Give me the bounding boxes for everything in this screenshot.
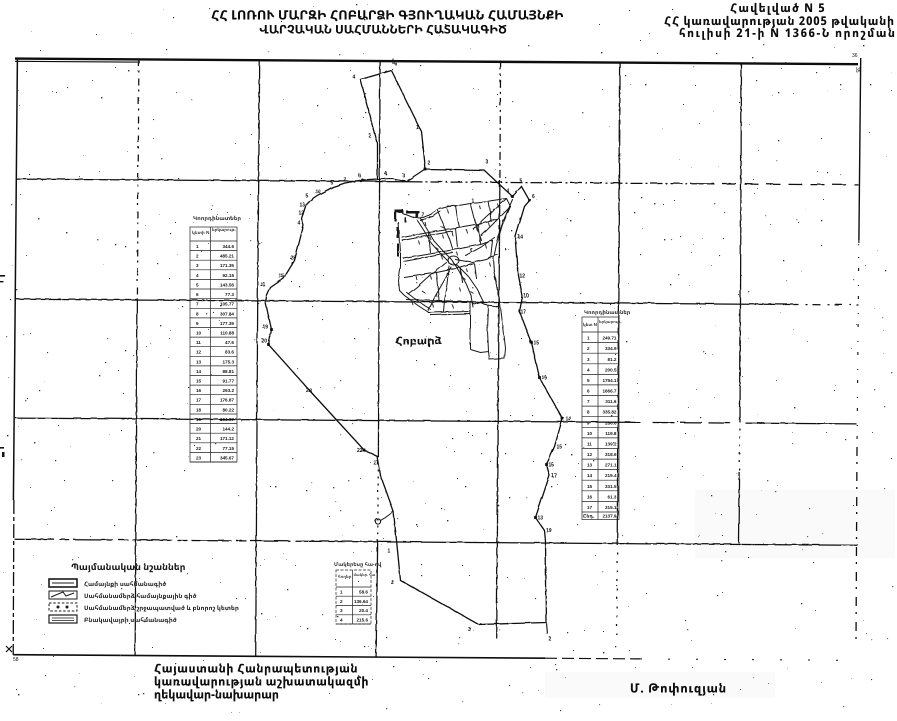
- svg-text:8: 8: [587, 410, 590, 415]
- svg-text:10: 10: [523, 293, 529, 299]
- svg-text:80.22: 80.22: [223, 407, 235, 412]
- svg-text:4: 4: [352, 74, 355, 80]
- svg-text:35: 35: [854, 67, 860, 73]
- svg-text:11: 11: [196, 340, 201, 345]
- svg-text:105.77: 105.77: [220, 302, 234, 307]
- svg-text:144.2: 144.2: [223, 427, 235, 432]
- svg-text:143.56: 143.56: [220, 282, 234, 287]
- svg-text:16: 16: [196, 388, 202, 393]
- svg-text:3: 3: [340, 608, 343, 613]
- svg-text:17: 17: [520, 309, 526, 315]
- svg-text:12: 12: [298, 210, 304, 216]
- svg-text:164.87: 164.87: [220, 417, 234, 422]
- svg-text:5: 5: [305, 193, 308, 199]
- svg-text:11: 11: [587, 442, 592, 447]
- svg-text:2: 2: [368, 133, 371, 139]
- svg-text:58.6: 58.6: [359, 590, 368, 595]
- svg-text:249.71: 249.71: [602, 336, 616, 341]
- svg-text:5: 5: [330, 180, 333, 186]
- svg-text:22: 22: [196, 446, 202, 451]
- svg-text:1: 1: [587, 336, 590, 341]
- svg-text:13: 13: [196, 359, 202, 364]
- svg-text:17: 17: [196, 398, 202, 403]
- svg-text:4: 4: [297, 220, 300, 226]
- svg-text:1: 1: [196, 244, 199, 249]
- svg-text:10: 10: [196, 331, 202, 336]
- svg-text:11: 11: [260, 282, 266, 288]
- svg-text:13: 13: [537, 515, 543, 521]
- svg-text:23: 23: [196, 455, 202, 460]
- svg-text:17: 17: [587, 505, 593, 510]
- svg-text:200.5: 200.5: [605, 367, 617, 372]
- svg-text:4: 4: [384, 171, 387, 177]
- svg-text:1: 1: [416, 125, 419, 131]
- svg-text:77.15: 77.15: [223, 446, 235, 451]
- svg-text:6: 6: [196, 292, 199, 297]
- svg-text:7: 7: [196, 302, 199, 307]
- svg-text:1: 1: [387, 548, 390, 554]
- svg-text:28: 28: [290, 255, 296, 261]
- svg-text:20: 20: [196, 427, 202, 432]
- svg-text:47.6: 47.6: [225, 340, 234, 345]
- svg-text:23: 23: [306, 388, 312, 394]
- svg-text:14: 14: [517, 234, 523, 240]
- svg-text:175.3: 175.3: [223, 359, 235, 364]
- svg-text:18: 18: [196, 407, 202, 412]
- svg-text:12: 12: [587, 452, 593, 457]
- svg-text:13: 13: [299, 202, 305, 208]
- svg-text:171.35: 171.35: [220, 263, 234, 268]
- svg-text:10: 10: [315, 189, 321, 195]
- svg-text:271.1: 271.1: [605, 463, 617, 468]
- svg-text:3: 3: [402, 173, 405, 179]
- svg-text:2: 2: [587, 346, 590, 351]
- svg-text:215.6: 215.6: [357, 617, 369, 622]
- svg-text:345.67: 345.67: [220, 455, 234, 460]
- svg-text:8: 8: [196, 311, 199, 316]
- svg-text:7: 7: [587, 399, 590, 404]
- svg-text:16: 16: [587, 494, 593, 499]
- svg-text:4: 4: [196, 273, 199, 278]
- svg-text:5: 5: [519, 178, 522, 184]
- svg-text:6: 6: [587, 389, 590, 394]
- svg-text:2: 2: [340, 599, 343, 604]
- svg-text:6: 6: [358, 173, 361, 179]
- svg-text:286.6: 286.6: [605, 420, 617, 425]
- svg-text:2: 2: [548, 636, 551, 642]
- svg-text:3: 3: [587, 357, 590, 362]
- svg-text:14: 14: [196, 369, 202, 374]
- svg-text:21: 21: [196, 436, 202, 441]
- svg-text:307.84: 307.84: [220, 311, 234, 316]
- svg-text:15: 15: [196, 379, 202, 384]
- svg-text:176.87: 176.87: [220, 398, 234, 403]
- svg-text:315.1: 315.1: [605, 505, 617, 510]
- svg-text:2137.9: 2137.9: [602, 514, 616, 519]
- svg-text:4: 4: [587, 367, 590, 372]
- svg-text:6: 6: [394, 61, 397, 67]
- svg-text:119.8: 119.8: [605, 431, 617, 436]
- svg-text:77.3: 77.3: [225, 292, 234, 297]
- svg-text:3: 3: [468, 627, 471, 633]
- svg-text:19: 19: [196, 417, 202, 422]
- svg-text:311.6: 311.6: [605, 399, 617, 404]
- svg-text:2: 2: [196, 254, 199, 259]
- svg-text:1: 1: [340, 590, 343, 595]
- svg-text:219.4: 219.4: [605, 473, 617, 478]
- svg-text:81.2: 81.2: [608, 357, 617, 362]
- svg-text:17: 17: [551, 473, 557, 479]
- svg-text:61.3: 61.3: [608, 494, 617, 499]
- svg-text:331.5: 331.5: [605, 484, 617, 489]
- svg-text:318.6: 318.6: [605, 452, 617, 457]
- svg-text:1754.1: 1754.1: [602, 378, 616, 383]
- svg-text:6: 6: [532, 194, 535, 200]
- svg-text:1666.7: 1666.7: [602, 389, 616, 394]
- svg-text:12: 12: [519, 273, 525, 279]
- svg-text:4: 4: [340, 617, 343, 622]
- svg-text:5: 5: [196, 282, 199, 287]
- svg-text:19: 19: [541, 375, 547, 381]
- svg-text:15: 15: [587, 484, 593, 489]
- svg-text:334.9: 334.9: [605, 346, 617, 351]
- svg-text:485.21: 485.21: [220, 254, 234, 259]
- svg-text:9: 9: [196, 321, 199, 326]
- svg-text:13: 13: [587, 463, 593, 468]
- svg-text:19: 19: [262, 324, 268, 330]
- svg-text:9: 9: [587, 420, 590, 425]
- svg-text:110.88: 110.88: [220, 331, 234, 336]
- svg-text:7: 7: [343, 177, 346, 183]
- svg-text:16: 16: [548, 462, 554, 468]
- svg-text:171.12: 171.12: [220, 436, 234, 441]
- svg-text:10: 10: [587, 431, 593, 436]
- svg-text:88.81: 88.81: [223, 369, 235, 374]
- svg-text:344.6: 344.6: [223, 244, 235, 249]
- svg-text:2: 2: [391, 580, 394, 586]
- svg-text:58: 58: [13, 657, 19, 663]
- svg-text:15: 15: [278, 273, 284, 279]
- svg-text:92.15: 92.15: [223, 273, 235, 278]
- svg-text:19: 19: [546, 528, 552, 534]
- svg-text:36: 36: [852, 53, 858, 59]
- svg-text:12: 12: [196, 350, 202, 355]
- svg-text:14: 14: [587, 473, 593, 478]
- svg-text:91.77: 91.77: [223, 379, 235, 384]
- svg-text:21: 21: [373, 460, 379, 466]
- svg-text:5: 5: [587, 378, 590, 383]
- svg-text:15: 15: [533, 340, 539, 346]
- svg-text:83.6: 83.6: [225, 350, 234, 355]
- svg-text:293.2: 293.2: [223, 388, 235, 393]
- svg-text:139.2: 139.2: [605, 442, 617, 447]
- svg-text:177.39: 177.39: [220, 321, 234, 326]
- svg-text:3: 3: [196, 263, 199, 268]
- svg-text:335.82: 335.82: [602, 410, 616, 415]
- svg-text:20.4: 20.4: [359, 608, 368, 613]
- svg-text:20: 20: [261, 338, 267, 344]
- svg-text:136.64: 136.64: [354, 599, 368, 604]
- svg-text:15: 15: [556, 444, 562, 450]
- svg-text:3: 3: [485, 159, 488, 165]
- svg-text:2: 2: [427, 160, 430, 166]
- svg-text:14: 14: [565, 416, 571, 422]
- svg-text:4: 4: [506, 188, 509, 194]
